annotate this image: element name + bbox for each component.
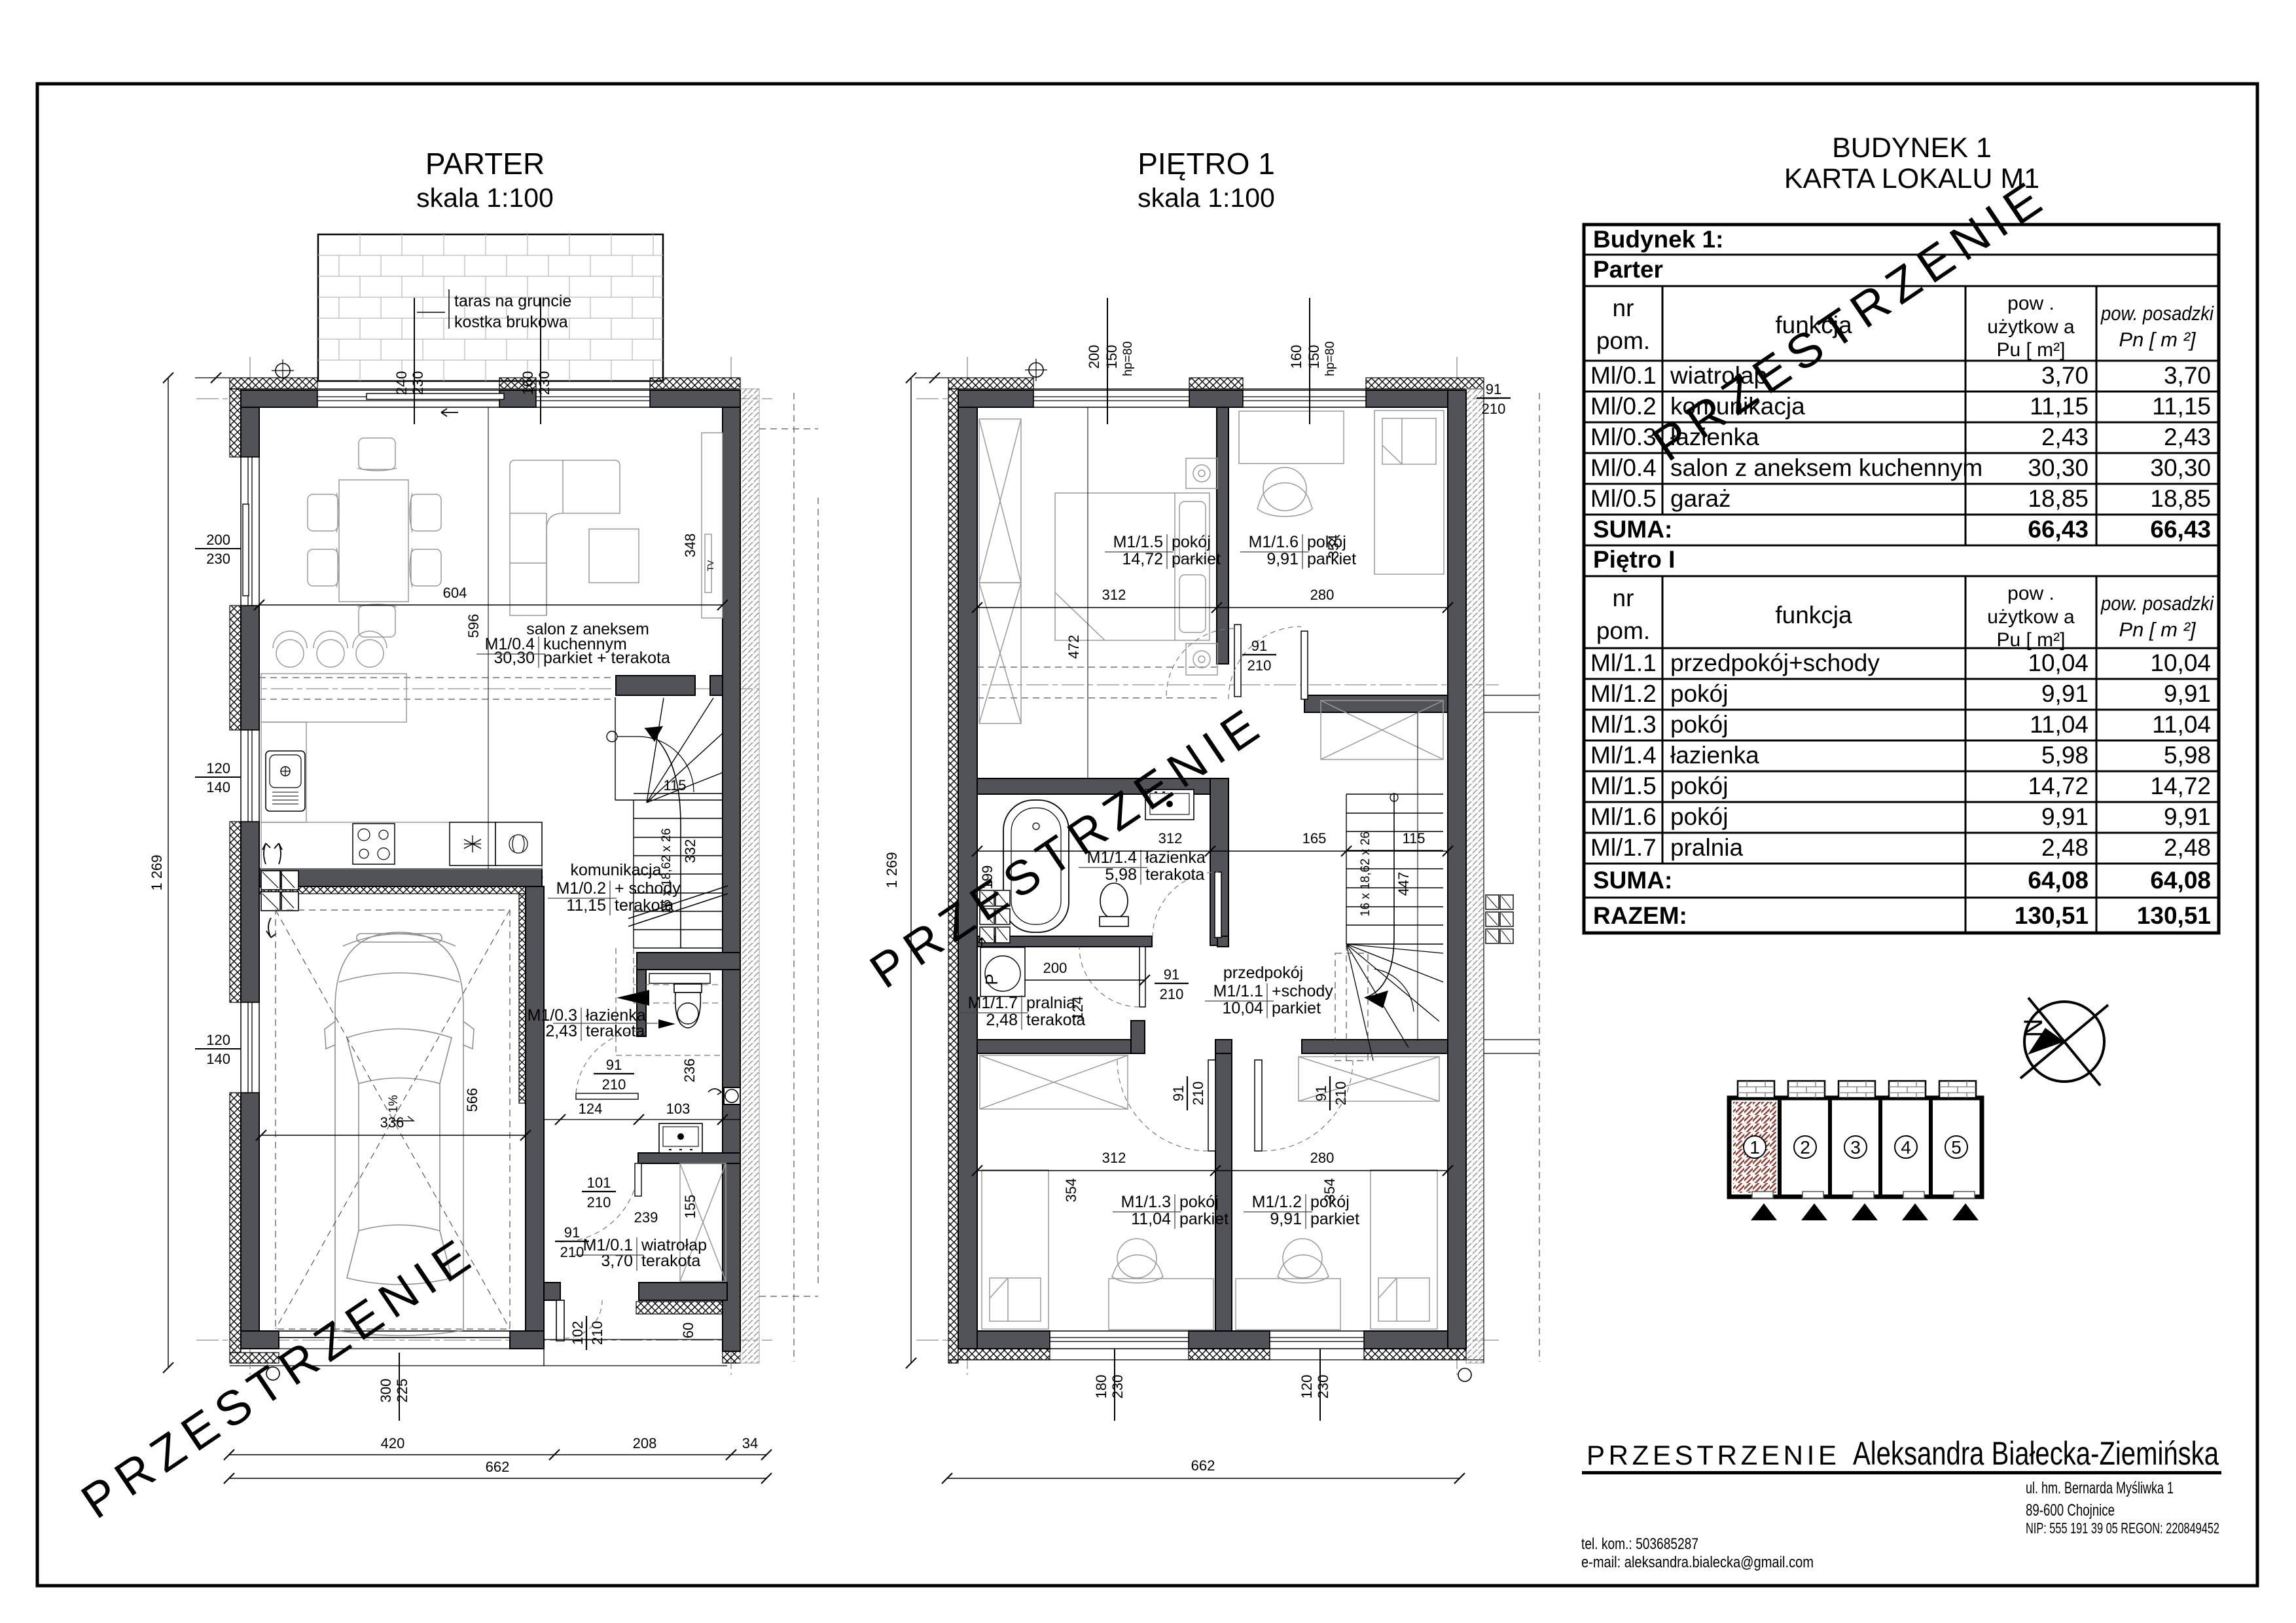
svg-text:PARTER: PARTER [425,147,545,181]
svg-text:Ml/1.2: Ml/1.2 [1590,680,1657,707]
svg-text:przedpokój+schody: przedpokój+schody [1670,649,1880,676]
svg-text:210: 210 [589,1321,605,1345]
svg-text:472: 472 [1066,635,1082,659]
svg-text:przedpokój: przedpokój [1223,964,1303,982]
svg-text:1 269: 1 269 [149,854,165,890]
svg-text:5,98: 5,98 [2164,742,2211,769]
svg-text:103: 103 [666,1101,691,1117]
svg-text:312: 312 [1158,830,1183,847]
svg-text:N: N [2019,1019,2048,1038]
svg-text:662: 662 [1191,1457,1215,1474]
svg-text:tel. kom.: 503685287: tel. kom.: 503685287 [1581,1535,1698,1553]
svg-text:91: 91 [1164,966,1179,983]
svg-text:SUMA:: SUMA: [1593,867,1672,894]
svg-text:130,51: 130,51 [2137,902,2211,929]
svg-text:210: 210 [1333,1082,1349,1106]
svg-text:Pu [ m²]: Pu [ m²] [1996,629,2065,651]
svg-text:pokój: pokój [1179,1193,1219,1211]
svg-text:taras na gruncie: taras na gruncie [454,292,571,310]
svg-text:11,04: 11,04 [2152,711,2211,738]
svg-text:2: 2 [1800,1137,1810,1158]
svg-text:3: 3 [1850,1137,1861,1158]
svg-text:10,04: 10,04 [2028,649,2089,676]
svg-text:91: 91 [606,1057,622,1073]
svg-text:+schody: +schody [1272,982,1333,1000]
svg-text:566: 566 [464,1088,480,1112]
svg-text:180: 180 [1093,1375,1109,1399]
svg-text:2,43: 2,43 [545,1022,577,1040]
svg-text:ul. hm. Bernarda Myśliwka 1: ul. hm. Bernarda Myśliwka 1 [2026,1479,2174,1497]
svg-text:91: 91 [564,1224,580,1241]
svg-text:230: 230 [1109,1375,1126,1399]
svg-text:9,91: 9,91 [2041,803,2089,830]
svg-text:terakota: terakota [1145,866,1204,884]
svg-text:300: 300 [378,1379,394,1403]
svg-text:210: 210 [1160,986,1184,1002]
svg-text:Piętro I: Piętro I [1593,546,1675,573]
svg-text:kostka brukowa: kostka brukowa [454,313,568,331]
svg-text:604: 604 [443,585,467,601]
svg-text:pow .: pow . [2007,583,2054,604]
svg-text:447: 447 [1395,872,1412,896]
svg-text:terakota: terakota [641,1252,700,1270]
svg-text:Ml/1.7: Ml/1.7 [1590,834,1657,861]
svg-text:124: 124 [1069,996,1086,1021]
svg-text:9,91: 9,91 [2041,680,2089,707]
svg-text:11,15: 11,15 [2152,393,2211,420]
svg-text:nr: nr [1613,295,1634,321]
svg-text:Ml/0.5: Ml/0.5 [1590,485,1657,512]
svg-text:208: 208 [633,1435,657,1451]
svg-text:312: 312 [1102,1150,1126,1166]
svg-text:354: 354 [1321,1178,1338,1203]
svg-text:1 269: 1 269 [884,852,900,888]
svg-text:Ml/0.2: Ml/0.2 [1590,393,1657,420]
svg-text:354: 354 [1063,1178,1079,1203]
svg-text:30,30: 30,30 [2028,454,2089,481]
svg-text:200: 200 [206,532,230,548]
svg-text:155: 155 [682,1195,698,1219]
svg-text:60: 60 [680,1322,696,1338]
svg-text:TV: TV [706,560,715,571]
svg-text:NIP: 555 191 39 05 REGON: 2208: NIP: 555 191 39 05 REGON: 220849452 [2026,1520,2219,1537]
svg-text:236: 236 [681,1059,698,1083]
svg-text:e-mail: aleksandra.bialecka@g: e-mail: aleksandra.bialecka@gmail.com [1581,1554,1814,1571]
svg-text:348: 348 [682,534,698,558]
svg-text:użytkow a: użytkow a [1987,316,2075,338]
svg-text:salon z aneksem kuchennym: salon z aneksem kuchennym [1670,454,1982,481]
svg-text:łazienka: łazienka [1670,742,1759,769]
svg-text:3,70: 3,70 [601,1252,633,1270]
svg-text:91: 91 [1486,381,1501,397]
svg-text:336: 336 [380,1114,404,1131]
svg-text:pokój: pokój [1670,803,1728,830]
svg-text:hp=80: hp=80 [1121,341,1135,376]
svg-text:30,30: 30,30 [2150,454,2211,481]
svg-text:Ml/1.3: Ml/1.3 [1590,711,1657,738]
svg-text:89-600 Chojnice: 89-600 Chojnice [2026,1501,2115,1520]
svg-text:160: 160 [520,371,536,395]
svg-text:M1/1.6: M1/1.6 [1249,533,1299,551]
svg-text:pokój: pokój [1670,711,1728,738]
svg-text:200: 200 [1043,960,1067,976]
svg-text:nr: nr [1613,585,1634,611]
svg-text:M1/0.2: M1/0.2 [556,879,606,898]
svg-text:10,04: 10,04 [1222,999,1263,1017]
svg-text:parkiet + terakota: parkiet + terakota [543,649,670,667]
svg-text:210: 210 [602,1076,626,1093]
svg-text:102: 102 [569,1321,586,1345]
svg-text:120: 120 [206,1032,230,1048]
svg-text:210: 210 [1190,1082,1206,1106]
svg-text:240: 240 [393,371,410,395]
svg-text:165: 165 [1302,830,1327,847]
svg-text:M1/1.3: M1/1.3 [1121,1193,1171,1211]
svg-text:101: 101 [587,1175,611,1191]
svg-text:14,72: 14,72 [2028,773,2089,799]
svg-text:Pu [ m²]: Pu [ m²] [1996,339,2065,361]
svg-text:1%: 1% [387,1095,401,1113]
svg-text:pom.: pom. [1596,617,1650,644]
svg-text:Ml/1.4: Ml/1.4 [1590,742,1657,769]
svg-text:9,91: 9,91 [2164,680,2211,707]
svg-text:210: 210 [560,1244,584,1260]
svg-text:280: 280 [1310,587,1335,603]
svg-text:5,98: 5,98 [2041,742,2089,769]
svg-text:124: 124 [579,1101,603,1117]
svg-text:16 x 18,62 x 26: 16 x 18,62 x 26 [1359,831,1372,917]
svg-text:30,30: 30,30 [493,649,535,667]
svg-text:210: 210 [1247,657,1272,674]
svg-text:200: 200 [1086,345,1102,369]
svg-text:Ml/1.1: Ml/1.1 [1590,649,1657,676]
svg-text:pow .: pow . [2007,293,2054,314]
svg-text:garaż: garaż [1670,485,1731,512]
svg-text:4: 4 [1901,1137,1911,1158]
svg-text:662: 662 [486,1459,510,1475]
svg-text:Ml/1.6: Ml/1.6 [1590,803,1657,830]
svg-text:10,04: 10,04 [2150,649,2211,676]
svg-text:130,51: 130,51 [2015,902,2089,929]
svg-text:120: 120 [1299,1375,1315,1399]
svg-text:5,98: 5,98 [1105,866,1137,884]
svg-text:PRZESTRZENIE: PRZESTRZENIE [1587,1440,1839,1470]
svg-text:1: 1 [1749,1137,1760,1158]
svg-text:Ml/0.4: Ml/0.4 [1590,454,1657,481]
svg-text:M1/1.7: M1/1.7 [968,994,1018,1012]
svg-text:66,43: 66,43 [2150,516,2211,543]
svg-text:pralnia: pralnia [1026,994,1075,1012]
svg-text:parkiet: parkiet [1310,1210,1359,1228]
svg-text:160: 160 [1288,345,1304,369]
svg-text:Pn [ m ²]: Pn [ m ²] [2119,328,2197,351]
svg-text:14,72: 14,72 [1122,550,1163,568]
svg-text:66,43: 66,43 [2028,516,2089,543]
svg-text:Parter: Parter [1593,256,1663,283]
svg-text:terakota: terakota [586,1022,645,1040]
svg-text:M1/1.2: M1/1.2 [1252,1193,1302,1211]
svg-text:34: 34 [742,1435,758,1451]
svg-text:pow. posadzki: pow. posadzki [2100,592,2214,615]
svg-text:Budynek 1:: Budynek 1: [1593,226,1723,253]
svg-text:11,15: 11,15 [2030,393,2089,420]
svg-text:9,91: 9,91 [1266,550,1299,568]
svg-text:11,04: 11,04 [2030,711,2089,738]
svg-text:210: 210 [1482,401,1506,417]
svg-text:230: 230 [1315,1375,1331,1399]
svg-text:pokój: pokój [1670,773,1728,799]
svg-text:239: 239 [634,1209,658,1226]
svg-text:M1/1.1: M1/1.1 [1213,982,1263,1000]
svg-text:2,43: 2,43 [2041,424,2089,450]
svg-text:225: 225 [394,1379,410,1403]
svg-text:280: 280 [1310,1150,1335,1166]
svg-text:pralnia: pralnia [1670,834,1743,861]
svg-text:parkiet: parkiet [1272,999,1321,1017]
svg-text:312: 312 [1102,587,1126,603]
svg-text:140: 140 [206,1051,230,1067]
svg-text:3,70: 3,70 [2041,362,2089,389]
svg-text:funkcja: funkcja [1775,602,1852,629]
svg-text:9,91: 9,91 [1270,1210,1302,1228]
svg-text:332: 332 [682,839,698,864]
svg-text:91: 91 [1170,1085,1187,1101]
svg-text:120: 120 [206,760,230,776]
svg-text:P: P [982,974,1001,985]
svg-text:pokój: pokój [1670,680,1728,707]
svg-text:140: 140 [206,779,230,795]
svg-text:16 x 18,62 x 26: 16 x 18,62 x 26 [660,828,673,913]
svg-text:115: 115 [663,777,686,793]
svg-text:230: 230 [206,551,230,567]
svg-text:2,43: 2,43 [2164,424,2211,450]
svg-text:210: 210 [587,1194,611,1211]
svg-text:SUMA:: SUMA: [1593,516,1672,543]
svg-text:91: 91 [1313,1085,1329,1101]
svg-text:skala 1:100: skala 1:100 [1138,183,1275,213]
svg-text:64,08: 64,08 [2150,867,2211,894]
svg-text:skala 1:100: skala 1:100 [416,183,554,213]
svg-text:parkiet: parkiet [1172,550,1221,568]
svg-text:18,85: 18,85 [2028,485,2089,512]
svg-text:230: 230 [536,371,552,395]
svg-text:użytkow a: użytkow a [1987,606,2075,628]
svg-text:pokój: pokój [1172,533,1211,551]
svg-text:hp=80: hp=80 [1323,341,1337,376]
svg-text:230: 230 [410,371,426,395]
svg-text:354: 354 [1325,535,1342,559]
svg-text:BUDYNEK 1: BUDYNEK 1 [1832,132,1992,164]
svg-text:150: 150 [1306,345,1322,369]
svg-text:150: 150 [1103,345,1120,369]
svg-text:Ml/0.1: Ml/0.1 [1590,362,1657,389]
svg-text:14,72: 14,72 [2150,773,2211,799]
svg-text:420: 420 [381,1435,405,1451]
svg-text:3,70: 3,70 [2164,362,2211,389]
svg-text:2,48: 2,48 [2041,834,2089,861]
svg-text:PIĘTRO 1: PIĘTRO 1 [1138,147,1275,181]
svg-text:RAZEM:: RAZEM: [1593,902,1687,929]
svg-text:18,85: 18,85 [2150,485,2211,512]
svg-text:11,04: 11,04 [1131,1210,1171,1228]
svg-text:115: 115 [1402,830,1425,847]
svg-text:2,48: 2,48 [2164,834,2211,861]
svg-text:5: 5 [1951,1137,1962,1158]
svg-text:64,08: 64,08 [2028,867,2089,894]
svg-text:11,15: 11,15 [566,896,606,915]
svg-text:91: 91 [1251,638,1267,654]
svg-text:komunikacja: komunikacja [571,861,662,879]
svg-text:pow. posadzki: pow. posadzki [2100,302,2214,325]
svg-text:M1/1.5: M1/1.5 [1113,533,1163,551]
svg-text:596: 596 [465,614,482,638]
svg-text:Ml/1.5: Ml/1.5 [1590,773,1657,799]
svg-text:parkiet: parkiet [1179,1210,1229,1228]
svg-text:2,48: 2,48 [986,1011,1018,1029]
svg-text:9,91: 9,91 [2164,803,2211,830]
svg-text:pom.: pom. [1596,327,1650,354]
svg-text:Pn [ m ²]: Pn [ m ²] [2119,618,2197,641]
svg-text:Aleksandra Białecka-Ziemińska: Aleksandra Białecka-Ziemińska [1853,1435,2219,1472]
